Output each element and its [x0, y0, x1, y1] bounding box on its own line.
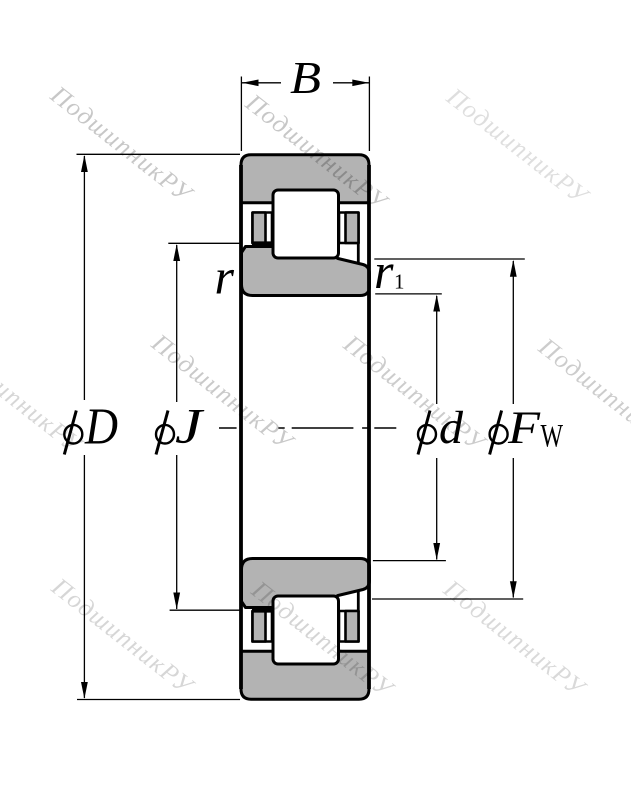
svg-text:W: W [541, 419, 564, 455]
svg-text:D: D [84, 399, 118, 456]
svg-text:B: B [290, 53, 321, 103]
svg-text:r: r [215, 249, 235, 305]
svg-text:J: J [175, 398, 205, 454]
svg-text:r: r [374, 243, 394, 299]
svg-text:F: F [507, 402, 542, 454]
svg-text:1: 1 [394, 270, 405, 294]
